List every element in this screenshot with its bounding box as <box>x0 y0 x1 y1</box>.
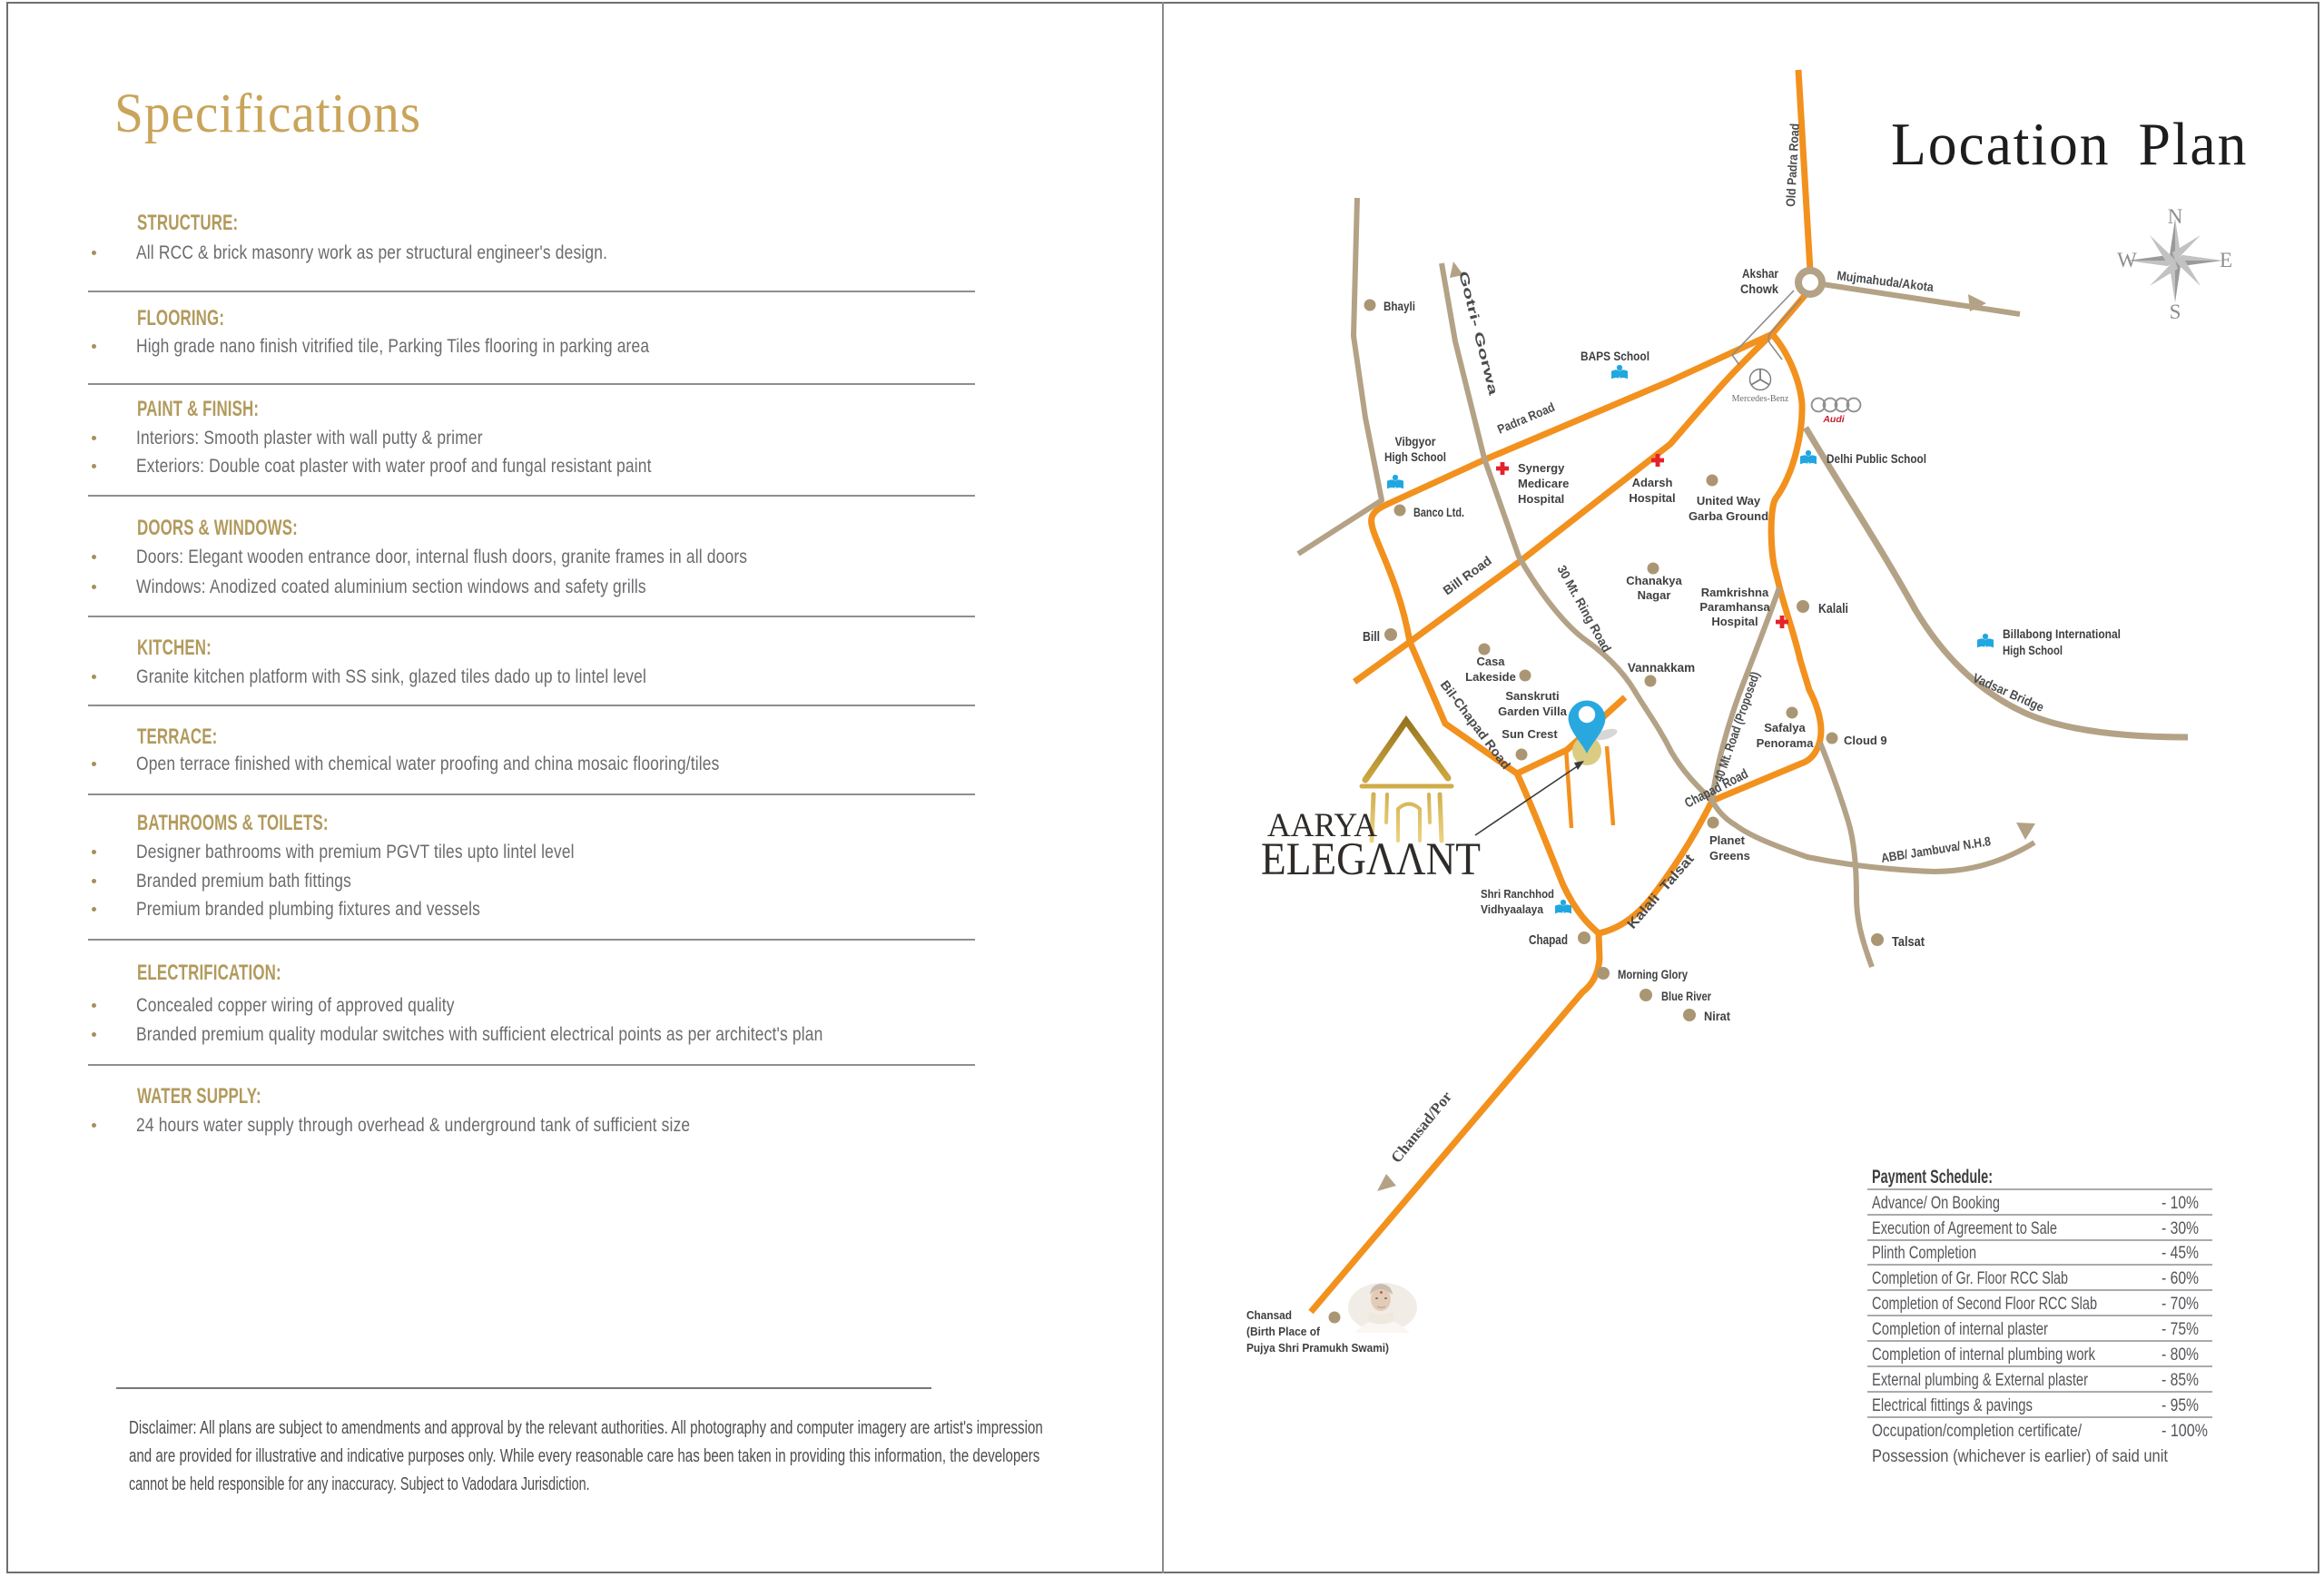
svg-text:ABB/ Jambuva/ N.H.8: ABB/ Jambuva/ N.H.8 <box>1880 833 1992 865</box>
svg-text:Nagar: Nagar <box>1638 588 1671 602</box>
svg-text:Completion of Second Floor RCC: Completion of Second Floor RCC Slab <box>1872 1295 2097 1314</box>
svg-text:ELEGΛΛNT: ELEGΛΛNT <box>1261 834 1481 885</box>
svg-text:(Birth Place of: (Birth Place of <box>1246 1325 1321 1338</box>
svg-text:BAPS School: BAPS School <box>1581 350 1649 363</box>
svg-text:Hospital: Hospital <box>1629 491 1675 505</box>
svg-text:Chapad: Chapad <box>1529 932 1568 948</box>
svg-text:Delhi Public School: Delhi Public School <box>1827 452 1926 466</box>
svg-text:Advance/ On Booking: Advance/ On Booking <box>1872 1194 2000 1213</box>
svg-text:Payment Schedule:: Payment Schedule: <box>1872 1167 1993 1188</box>
svg-text:Billabong International: Billabong International <box>2003 627 2121 641</box>
svg-text:- 45%: - 45% <box>2162 1244 2199 1263</box>
svg-text:Casa: Casa <box>1476 655 1505 668</box>
svg-text:Akshar: Akshar <box>1742 266 1778 281</box>
svg-text:Cloud 9: Cloud 9 <box>1844 734 1887 747</box>
svg-text:Vibgyor: Vibgyor <box>1395 435 1437 448</box>
svg-text:Completion of internal plumbin: Completion of internal plumbing work <box>1872 1345 2095 1365</box>
svg-text:Garden Villa: Garden Villa <box>1498 705 1567 718</box>
svg-text:Completion of Gr. Floor RCC Sl: Completion of Gr. Floor RCC Slab <box>1872 1269 2068 1288</box>
svg-text:- 60%: - 60% <box>2162 1269 2199 1288</box>
svg-text:- 10%: - 10% <box>2162 1194 2199 1213</box>
svg-text:Execution of Agreement to Sale: Execution of Agreement to Sale <box>1872 1219 2057 1238</box>
svg-text:Electrical fittings & pavings: Electrical fittings & pavings <box>1872 1396 2033 1415</box>
svg-text:United Way: United Way <box>1697 494 1761 508</box>
svg-text:External plumbing & External p: External plumbing & External plaster <box>1872 1371 2089 1390</box>
svg-text:Bill: Bill <box>1363 629 1380 645</box>
svg-text:- 75%: - 75% <box>2162 1320 2199 1339</box>
svg-text:- 85%: - 85% <box>2162 1371 2199 1390</box>
svg-text:Chowk: Chowk <box>1740 281 1778 296</box>
svg-text:Garba Ground: Garba Ground <box>1689 509 1768 523</box>
svg-text:40 Mt. Road (Proposed): 40 Mt. Road (Proposed) <box>1711 670 1762 784</box>
svg-text:Sun Crest: Sun Crest <box>1502 727 1558 741</box>
svg-text:- 30%: - 30% <box>2162 1219 2199 1238</box>
svg-text:Banco Ltd.: Banco Ltd. <box>1413 506 1464 519</box>
svg-text:Adarsh: Adarsh <box>1632 476 1673 489</box>
svg-text:- 100%: - 100% <box>2162 1422 2208 1441</box>
svg-text:Mercedes-Benz: Mercedes-Benz <box>1732 394 1789 404</box>
svg-text:Shri Ranchhod: Shri Ranchhod <box>1481 887 1554 901</box>
svg-text:Penorama: Penorama <box>1757 736 1815 750</box>
svg-text:Morning Glory: Morning Glory <box>1618 968 1688 981</box>
svg-text:Sanskruti: Sanskruti <box>1505 689 1559 703</box>
svg-text:Paramhansa: Paramhansa <box>1699 600 1770 614</box>
svg-text:Audi: Audi <box>1822 414 1845 425</box>
svg-text:Lakeside: Lakeside <box>1465 670 1516 684</box>
svg-text:High School: High School <box>1384 450 1446 464</box>
svg-text:Kalali: Kalali <box>1818 601 1848 616</box>
svg-text:Bhayli: Bhayli <box>1384 300 1415 313</box>
svg-text:Completion of internal plaster: Completion of internal plaster <box>1872 1320 2049 1339</box>
svg-text:Plinth Completion: Plinth Completion <box>1872 1244 1976 1263</box>
svg-text:Planet: Planet <box>1709 833 1746 847</box>
svg-text:N: N <box>2168 205 2183 228</box>
svg-text:Safalya: Safalya <box>1764 721 1806 734</box>
svg-text:Possession (whichever is earli: Possession (whichever is earlier) of sai… <box>1872 1447 2169 1466</box>
svg-text:Blue River: Blue River <box>1661 990 1712 1003</box>
svg-text:High School: High School <box>2003 644 2063 657</box>
svg-text:Old Padra Road: Old Padra Road <box>1783 123 1802 207</box>
svg-text:Greens: Greens <box>1709 849 1750 862</box>
svg-text:Talsat: Talsat <box>1892 934 1925 950</box>
svg-text:Bill Road: Bill Road <box>1440 553 1494 597</box>
svg-text:- 80%: - 80% <box>2162 1345 2199 1365</box>
svg-text:E: E <box>2220 249 2232 271</box>
svg-text:- 95%: - 95% <box>2162 1396 2199 1415</box>
svg-text:Chanakya: Chanakya <box>1626 574 1682 587</box>
svg-text:Synergy: Synergy <box>1518 461 1565 475</box>
svg-text:Vannakkam: Vannakkam <box>1628 661 1695 675</box>
svg-text:Ramkrishna: Ramkrishna <box>1701 586 1769 599</box>
svg-text:Vidhyaalaya: Vidhyaalaya <box>1481 902 1544 916</box>
svg-text:Hospital: Hospital <box>1518 492 1564 506</box>
svg-text:W: W <box>2117 249 2137 271</box>
svg-text:Medicare: Medicare <box>1518 477 1569 490</box>
svg-text:Nirat: Nirat <box>1704 1010 1730 1023</box>
svg-text:Kalali Talsat: Kalali Talsat <box>1624 852 1697 932</box>
svg-text:- 70%: - 70% <box>2162 1295 2199 1314</box>
svg-text:Pujya Shri Pramukh Swami): Pujya Shri Pramukh Swami) <box>1246 1341 1389 1355</box>
svg-text:Chansad: Chansad <box>1246 1308 1292 1322</box>
svg-text:Hospital: Hospital <box>1711 615 1758 628</box>
svg-text:S: S <box>2170 301 2181 323</box>
svg-text:Occupation/completion certific: Occupation/completion certificate/ <box>1872 1422 2083 1441</box>
